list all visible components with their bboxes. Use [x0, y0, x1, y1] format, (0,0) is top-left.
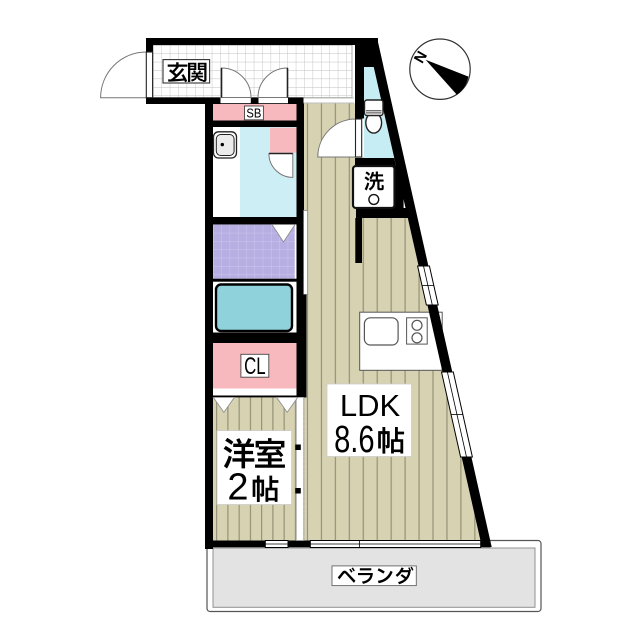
svg-text:2: 2: [227, 467, 248, 509]
svg-text:CL: CL: [244, 353, 266, 380]
svg-text:SB: SB: [246, 106, 261, 120]
svg-text:LDK: LDK: [340, 388, 401, 423]
svg-text:8.6: 8.6: [334, 419, 375, 461]
